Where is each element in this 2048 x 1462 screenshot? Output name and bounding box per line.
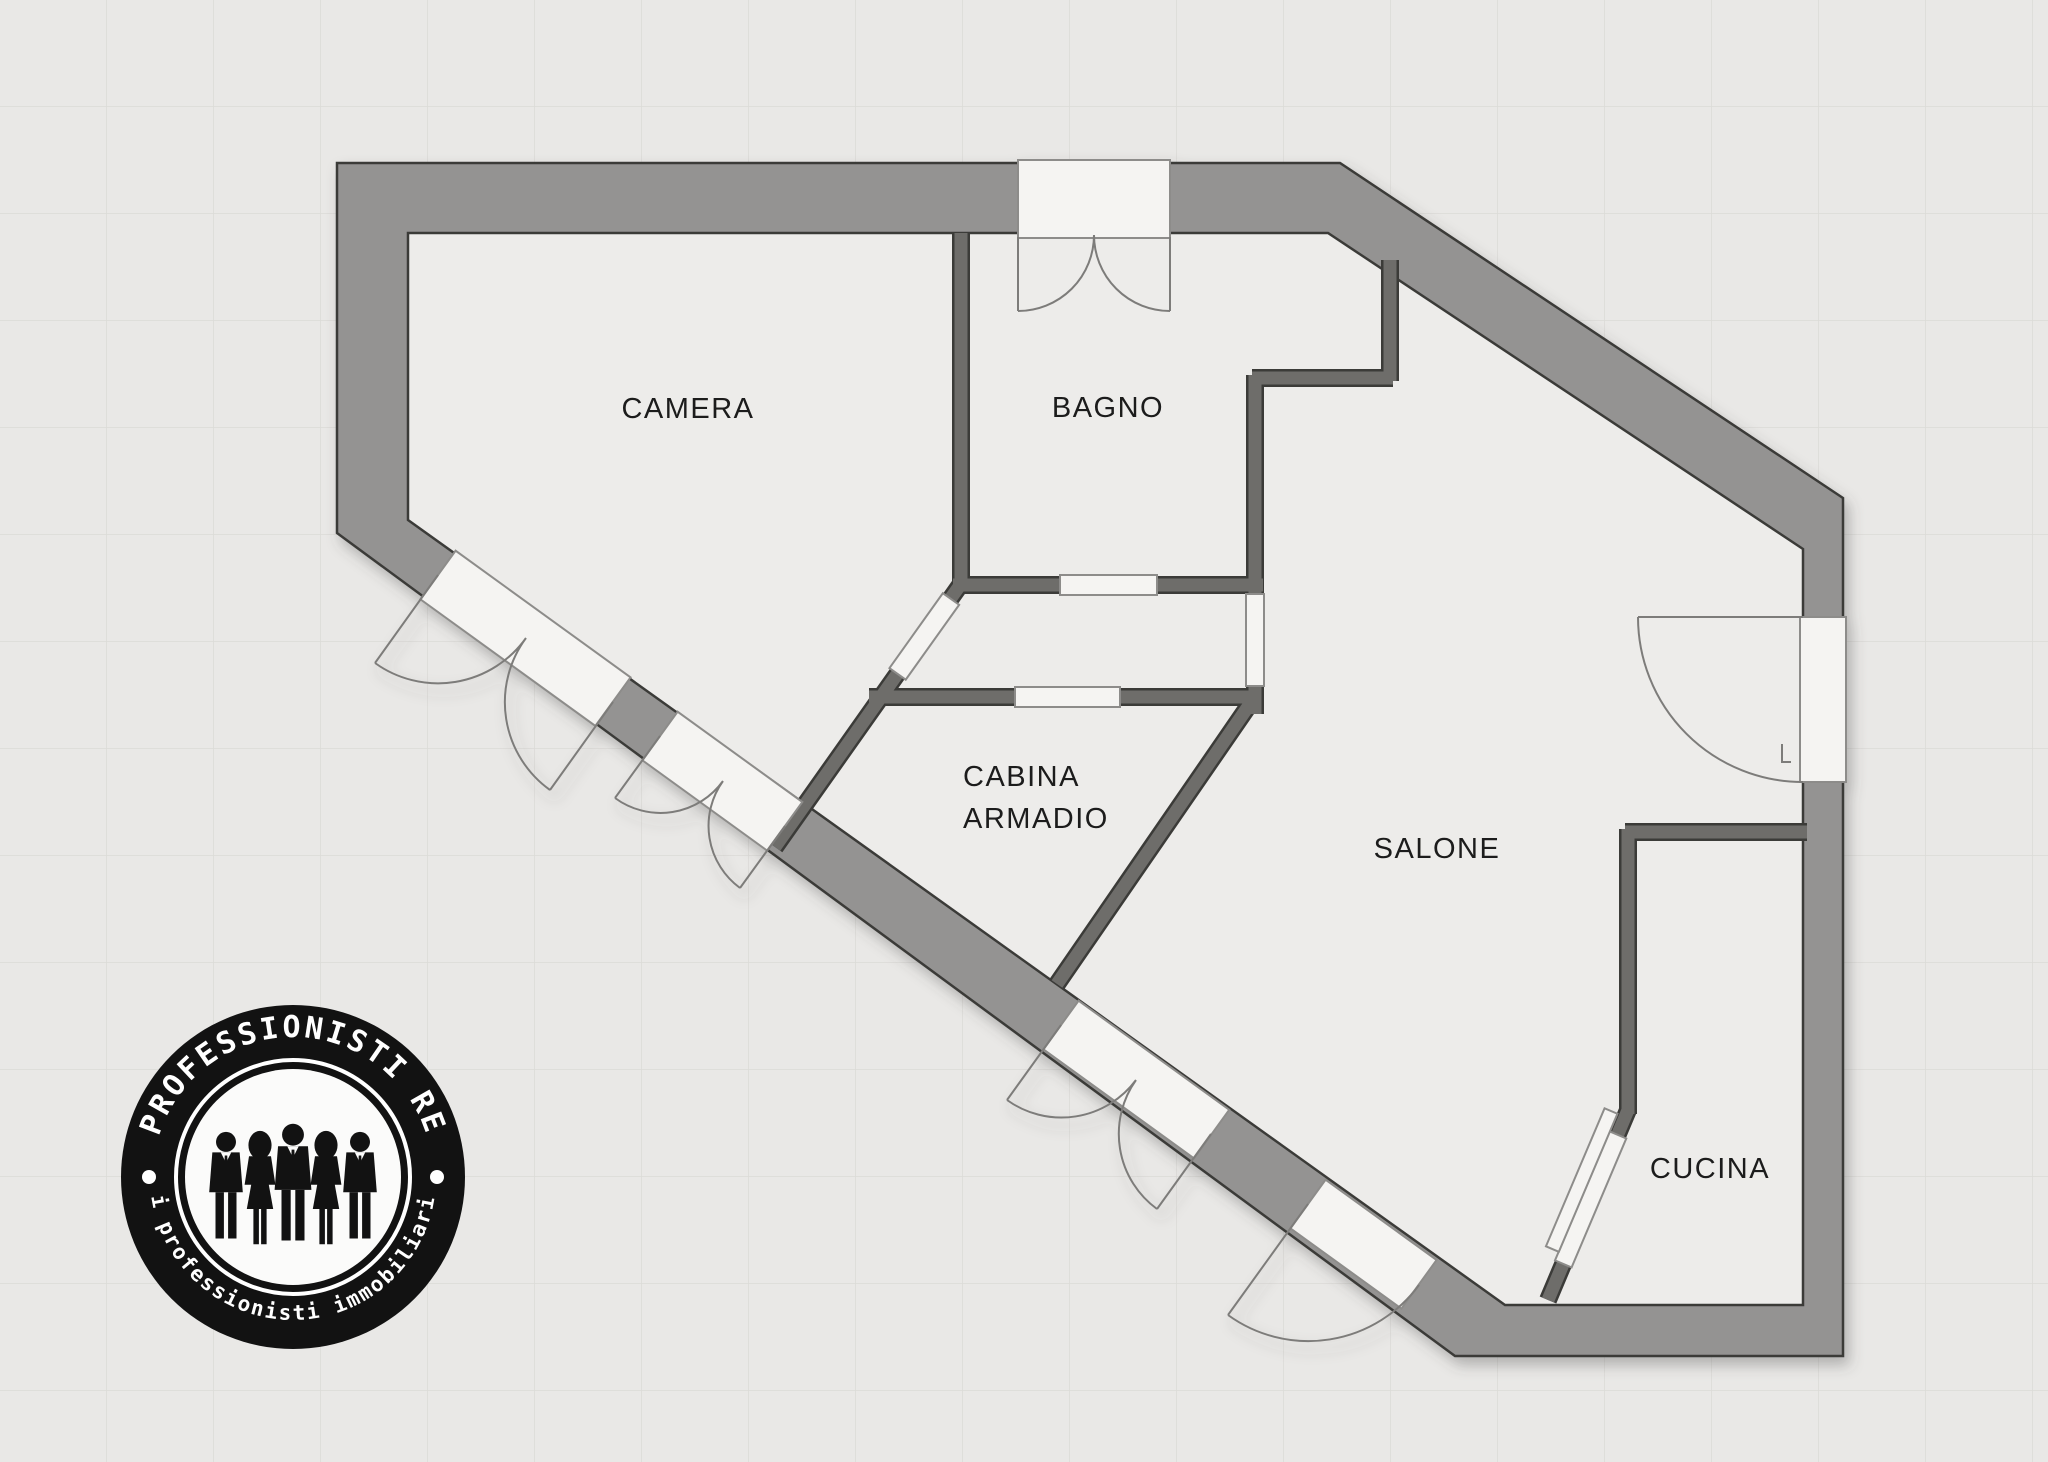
- room-label-salone: SALONE: [1374, 833, 1501, 865]
- balcony-door-opening-bagno: [1018, 160, 1170, 238]
- logo-right-dot: [430, 1170, 444, 1184]
- entrance-door-opening-salone: [1800, 617, 1846, 782]
- door-opening-bagno: [1060, 575, 1157, 595]
- floor-plan-page: CAMERABAGNOCABINAARMADIOSALONECUCINA PRO…: [0, 0, 2048, 1462]
- door-opening-corridor-salone: [1246, 594, 1264, 686]
- room-label-cucina: CUCINA: [1650, 1153, 1770, 1185]
- room-label-camera: CAMERA: [621, 393, 754, 425]
- logo-left-dot: [142, 1170, 156, 1184]
- room-label-bagno: BAGNO: [1052, 392, 1164, 424]
- floor-plan-canvas: CAMERABAGNOCABINAARMADIOSALONECUCINA PRO…: [0, 0, 2048, 1462]
- agency-logo: PROFESSIONISTI RE i professionisti immob…: [121, 1005, 465, 1349]
- door-opening-cabina: [1015, 687, 1120, 707]
